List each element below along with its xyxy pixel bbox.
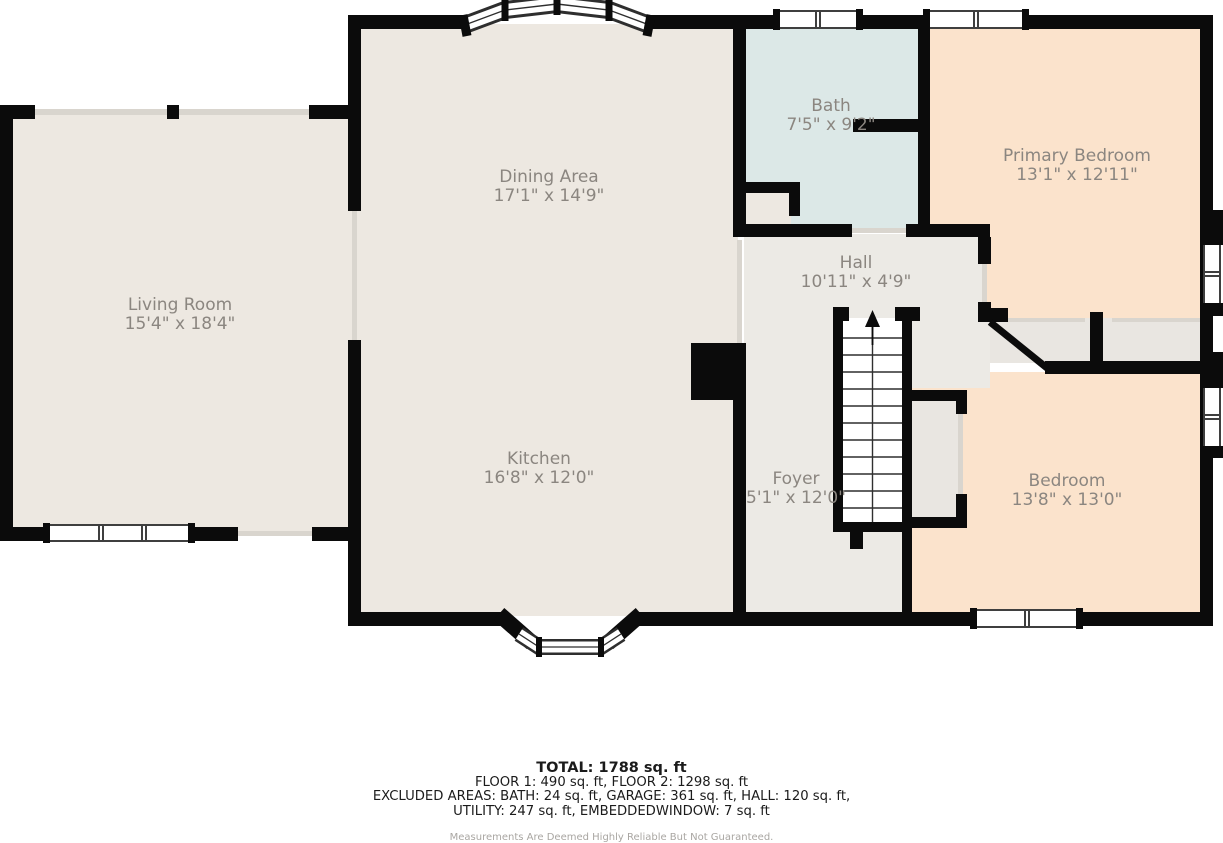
room-label-living-room: Living Room 15'4" x 18'4"	[125, 296, 236, 334]
room-name: Kitchen	[484, 450, 595, 469]
wall-hall-top-b	[906, 224, 990, 237]
wall-stairs-stub	[850, 532, 863, 549]
wall-right-exterior	[1200, 15, 1213, 618]
room-name: Dining Area	[494, 168, 605, 187]
closet-opening-left	[1008, 318, 1085, 322]
living-garage-opening	[238, 531, 312, 536]
wall-stairs-right	[902, 307, 912, 532]
hall-landing-floor	[912, 322, 990, 390]
closet-opening-right	[1112, 318, 1200, 322]
room-name: Foyer	[746, 470, 846, 489]
bedroom-closet-floor	[912, 396, 958, 518]
primary-bedroom-door-opening	[982, 264, 987, 302]
wall-bottom-bedroom	[1076, 612, 1213, 626]
primary-bedroom-top-window	[928, 10, 1024, 29]
room-dims: 10'11" x 4'9"	[801, 273, 912, 292]
room-dims: 5'1" x 12'0"	[746, 489, 846, 508]
floor-areas-text: FLOOR 1: 490 sq. ft, FLOOR 2: 1298 sq. f…	[0, 776, 1223, 790]
room-label-dining-area: Dining Area 17'1" x 14'9"	[494, 168, 605, 206]
room-name: Bath	[786, 97, 875, 116]
total-area-text: TOTAL: 1788 sq. ft	[0, 761, 1223, 776]
wall-living-left	[0, 105, 13, 541]
wall-hall-corner-post	[978, 308, 1008, 322]
bedroom-right-window	[1203, 386, 1221, 448]
wall-hall-top-a	[733, 224, 852, 237]
wall-hall-right-a	[978, 237, 991, 264]
room-label-kitchen: Kitchen 16'8" x 12'0"	[484, 450, 595, 488]
dining-hall-opening	[737, 240, 742, 343]
wall-dining-top-b	[646, 15, 746, 29]
room-dims: 15'4" x 18'4"	[125, 315, 236, 334]
room-label-bath: Bath 7'5" x 9'2"	[786, 97, 875, 135]
wall-stairs-post-right	[895, 307, 920, 321]
room-label-primary-bedroom: Primary Bedroom 13'1" x 12'11"	[1003, 147, 1151, 185]
wall-stairs-post-left	[833, 307, 849, 321]
wall-living-bottom-a	[0, 527, 48, 541]
bath-window	[778, 10, 858, 29]
wall-living-top-a	[0, 105, 35, 119]
wall-closet-bottom	[1045, 361, 1213, 374]
kitchen-bay-window	[499, 614, 641, 657]
wall-bottom-kitchen-a	[348, 612, 503, 626]
living-dining-opening	[352, 211, 357, 340]
room-label-bedroom: Bedroom 13'8" x 13'0"	[1012, 472, 1123, 510]
wall-primary-top	[1022, 15, 1213, 29]
bedroom-closet-opening	[958, 414, 963, 494]
wall-bottom-foyer	[637, 612, 977, 626]
living-top-opening-left	[33, 109, 167, 115]
wall-dining-left-lower	[348, 340, 361, 615]
stairwell-floor	[843, 318, 902, 524]
dining-kitchen-floor	[356, 24, 738, 616]
bedroom-bottom-window	[975, 609, 1078, 628]
bath-door-opening	[852, 228, 906, 233]
wall-dining-top-a	[348, 15, 468, 29]
living-top-opening-right	[179, 109, 309, 115]
area-summary: TOTAL: 1788 sq. ft FLOOR 1: 490 sq. ft, …	[0, 761, 1223, 843]
living-room-window	[48, 524, 190, 542]
primary-bedroom-right-window	[1203, 243, 1221, 305]
room-label-foyer: Foyer 5'1" x 12'0"	[746, 470, 846, 508]
wall-bedroom-closet-stub-b	[956, 494, 967, 528]
room-name: Hall	[801, 254, 912, 273]
wall-dining-left-upper	[348, 15, 361, 211]
room-dims: 13'8" x 13'0"	[1012, 491, 1123, 510]
wall-living-top-post	[167, 105, 179, 119]
excluded-areas-text-2: UTILITY: 247 sq. ft, EMBEDDEDWINDOW: 7 s…	[0, 805, 1223, 819]
room-label-hall: Hall 10'11" x 4'9"	[801, 254, 912, 292]
wall-kitchen-foyer	[733, 400, 746, 618]
room-dims: 17'1" x 14'9"	[494, 187, 605, 206]
wall-dining-bath	[733, 15, 746, 237]
wall-bedroom-closet-stub-a	[956, 390, 967, 414]
kitchen-chase-block	[691, 343, 746, 400]
wall-bath-closet-right	[789, 182, 800, 216]
room-dims: 16'8" x 12'0"	[484, 469, 595, 488]
wall-stairs-bottom	[833, 522, 912, 532]
room-dims: 13'1" x 12'11"	[1003, 166, 1151, 185]
room-dims: 7'5" x 9'2"	[786, 116, 875, 135]
wall-living-bottom-b	[190, 527, 238, 541]
disclaimer-text: Measurements Are Deemed Highly Reliable …	[0, 832, 1223, 843]
room-name: Bedroom	[1012, 472, 1123, 491]
wall-bedroom-left	[902, 532, 912, 618]
excluded-areas-text-1: EXCLUDED AREAS: BATH: 24 sq. ft, GARAGE:…	[0, 790, 1223, 804]
floor-plan: Living Room 15'4" x 18'4" Dining Area 17…	[0, 0, 1223, 843]
room-name: Living Room	[125, 296, 236, 315]
room-name: Primary Bedroom	[1003, 147, 1151, 166]
